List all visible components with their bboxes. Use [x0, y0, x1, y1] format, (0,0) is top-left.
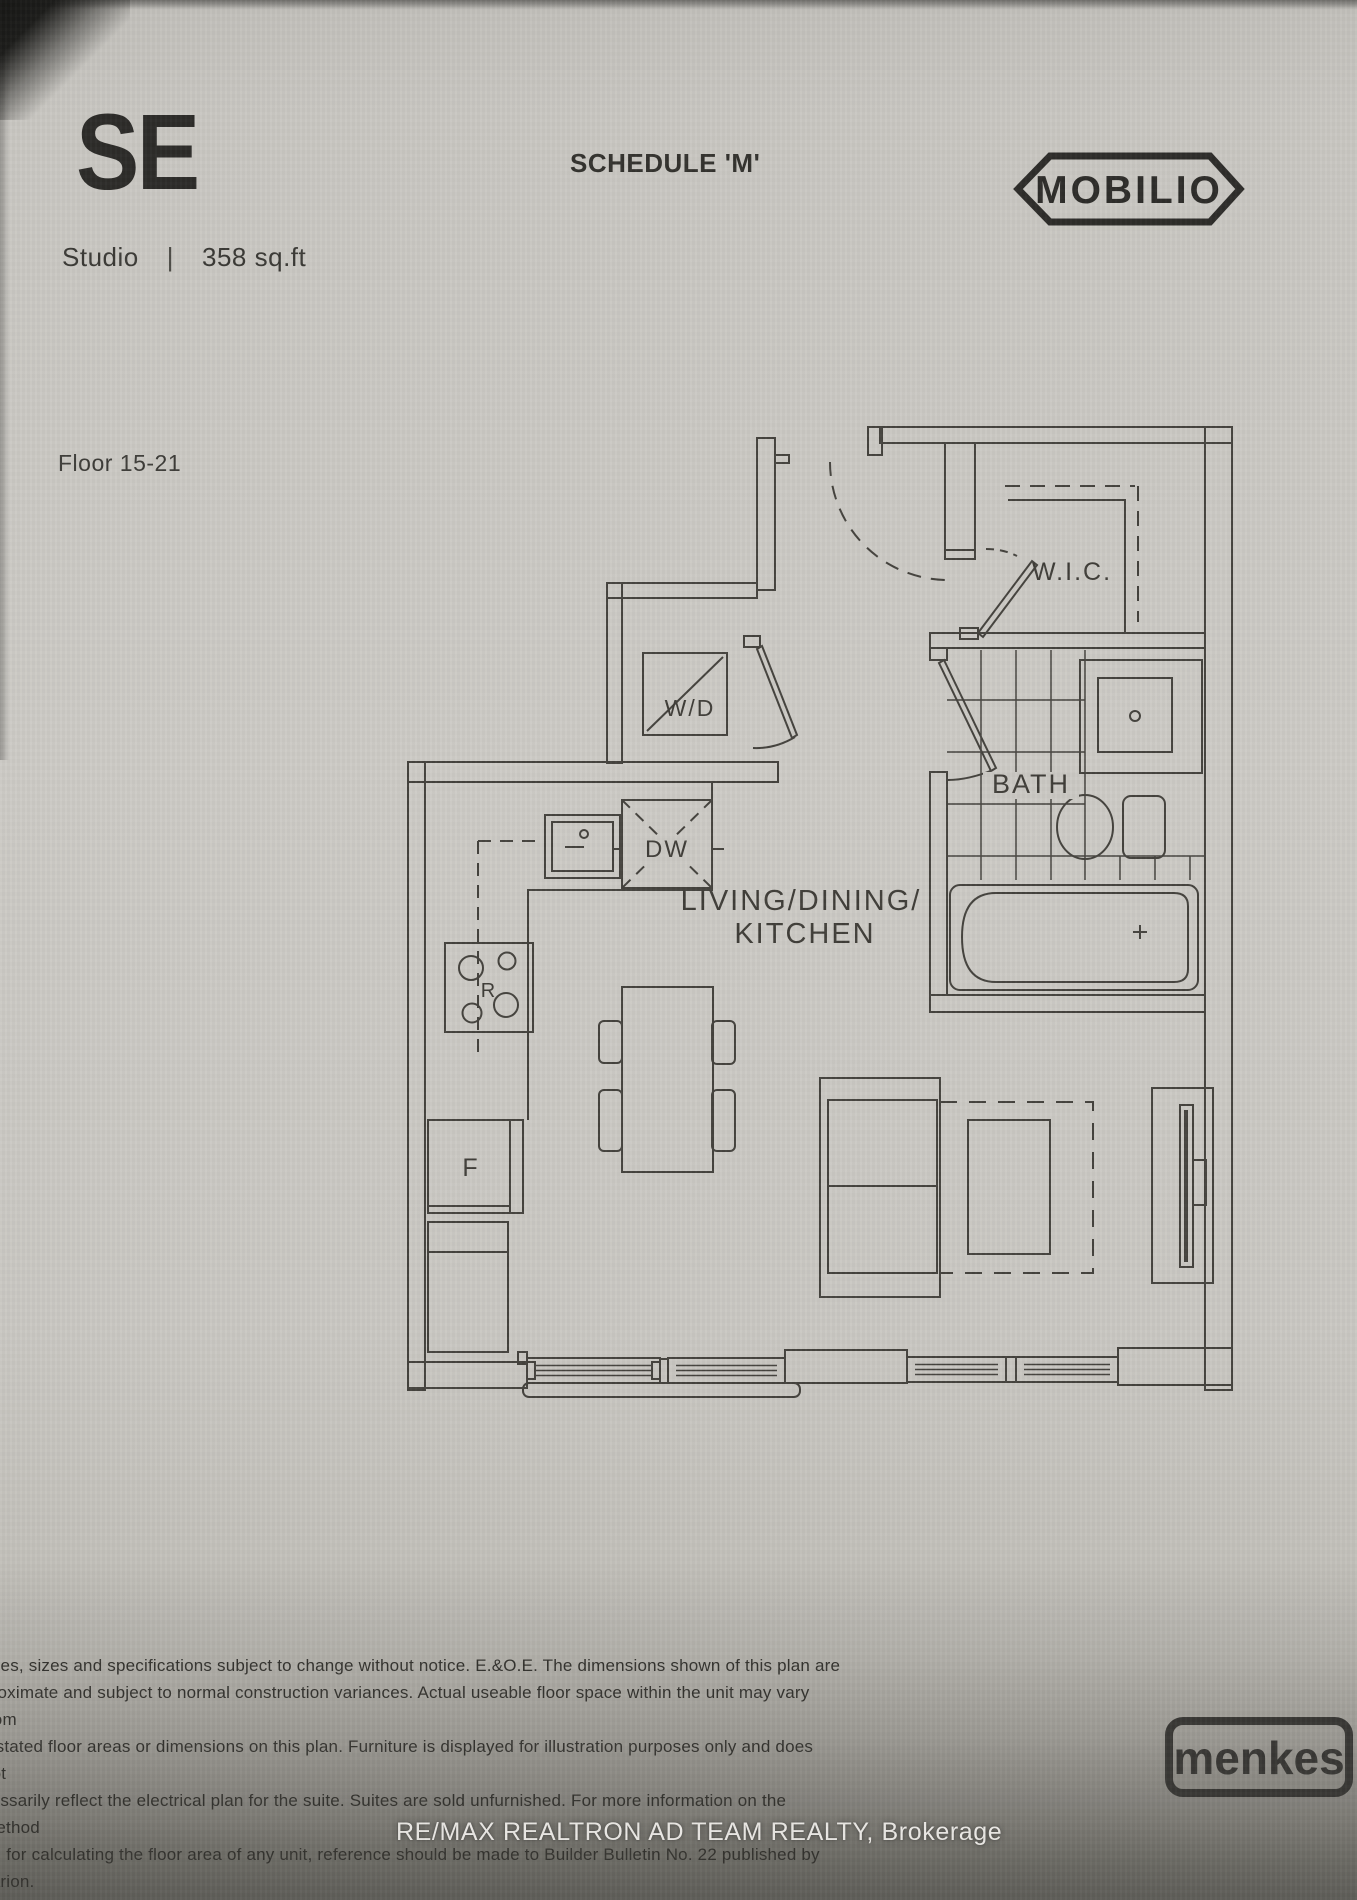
disclaimer-line: rices, sizes and specifications subject … — [0, 1652, 842, 1679]
bath-door — [939, 660, 996, 780]
wic-door-jamb — [945, 550, 975, 559]
wall-entry-left — [757, 438, 775, 590]
doors — [744, 462, 1037, 780]
dining-chair — [712, 1090, 735, 1151]
tv-unit — [1152, 1088, 1213, 1283]
window-d — [1016, 1357, 1118, 1382]
menkes-logo-text: menkes — [1173, 1732, 1344, 1784]
wall-left — [408, 762, 425, 1390]
entry-door-swing — [830, 462, 948, 580]
dining-chair — [599, 1021, 622, 1063]
sofa-bed — [820, 1078, 940, 1297]
bath-door-jamb-top — [930, 648, 947, 660]
menkes-logo: menkes — [1164, 1716, 1354, 1802]
kitchen — [428, 782, 724, 1352]
wall-wd-closet-top — [607, 583, 757, 598]
wall-entry-wic-divider — [945, 443, 975, 550]
wall-bath-top — [930, 633, 1205, 648]
disclaimer-line: proximate and subject to normal construc… — [0, 1679, 842, 1733]
wall-wd-closet-left — [607, 583, 622, 763]
wd-closet-door — [744, 636, 797, 748]
kitchen-sink — [545, 815, 620, 878]
bath-label: BATH — [992, 769, 1070, 799]
pull-out-bed-dashed — [940, 1102, 1093, 1273]
window-a — [527, 1358, 660, 1383]
coffee-table — [968, 1120, 1050, 1254]
floorplan-document-photo: SE Studio | 358 sq.ft SCHEDULE 'M' Floor… — [0, 0, 1357, 1900]
window-mullion — [660, 1359, 668, 1383]
window-c — [907, 1357, 1006, 1382]
wall-kitchen-top — [408, 762, 778, 782]
disclaimer-line: ed for calculating the floor area of any… — [0, 1841, 842, 1895]
bath-tile-grid — [947, 650, 1205, 880]
wall-bath-bottom — [930, 995, 1205, 1012]
wic-label: W.I.C. — [1032, 558, 1112, 586]
fridge-label: F — [462, 1154, 479, 1182]
washer-dryer-label: W/D — [665, 695, 716, 721]
living-furniture — [820, 1078, 1213, 1297]
washer-dryer-unit — [643, 653, 727, 735]
dining-table — [622, 987, 713, 1172]
wic-shelf-dashed — [1005, 486, 1138, 622]
living-dining-label: LIVING/DINING/ — [681, 885, 922, 917]
dining-chair — [712, 1021, 735, 1064]
wall-right — [1205, 427, 1232, 1390]
bath-sink — [1080, 660, 1202, 773]
lower-cabinets — [428, 1222, 508, 1352]
upper-cabinet-dashed — [478, 841, 545, 1056]
wic-door — [960, 549, 1037, 639]
brokerage-watermark: RE/MAX REALTRON AD TEAM REALTY, Brokerag… — [396, 1818, 1002, 1847]
bottom-wall-and-windows — [408, 1348, 1232, 1397]
dining-set — [599, 987, 735, 1172]
window-sill — [523, 1383, 800, 1397]
bath-fixtures — [947, 650, 1205, 990]
dishwasher-label: DW — [645, 836, 689, 863]
wall-bottom-right-block — [1118, 1348, 1232, 1385]
kitchen-label: KITCHEN — [734, 918, 875, 950]
wall-bath-left — [930, 772, 947, 995]
wall-bottom-pier — [785, 1350, 907, 1383]
window-b — [668, 1358, 785, 1383]
range-label: R — [481, 980, 497, 1002]
disclaimer-text: rices, sizes and specifications subject … — [0, 1652, 842, 1895]
disclaimer-line: y stated floor areas or dimensions on th… — [0, 1733, 842, 1787]
entry-door-jamb — [775, 455, 789, 463]
dining-chair — [599, 1090, 622, 1151]
floor-plan-drawing: W/D W.I.C. BATH DW LIVING/DINING/ KITCHE… — [0, 0, 1357, 1900]
wall-top — [880, 427, 1232, 443]
window-mullion — [1006, 1357, 1016, 1382]
tub-faucet-cross — [1133, 925, 1147, 939]
bathtub — [950, 885, 1198, 990]
